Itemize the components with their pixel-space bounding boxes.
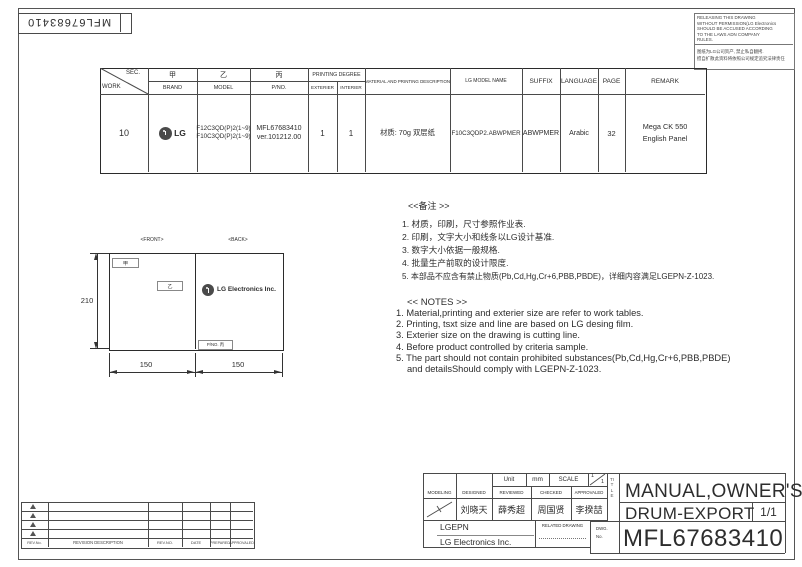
rev-no2-header: REV.NO.	[148, 538, 182, 547]
dim-ext-line	[90, 348, 109, 349]
revision-marker-icon	[30, 531, 36, 536]
cell-exterier: 1	[308, 94, 337, 172]
col-header-lg-model-name: LG MODEL NAME	[450, 68, 522, 94]
checked-name: 周国贤	[531, 498, 571, 520]
scale-label: SCALE	[549, 473, 588, 486]
approvaled-header-rev: APPROVALED	[230, 538, 253, 547]
jia-marker-box: 甲	[112, 258, 139, 268]
line	[694, 44, 793, 45]
note-en-item: 4. Before product controlled by criteria…	[396, 342, 730, 353]
panel-fold-line	[195, 253, 196, 349]
col-header-bing: 丙	[250, 68, 308, 81]
dim-line	[97, 253, 98, 349]
line	[437, 535, 534, 536]
note-cn-item: 2. 印刷，文字大小和线条以LG设计基准.	[402, 231, 714, 244]
notes-en-heading: << NOTES >>	[407, 297, 467, 308]
checked-header: CHECKED	[531, 486, 571, 498]
cell-pno: MFL67683410 ver.101212.00	[250, 94, 308, 172]
dim-height-value: 210	[78, 296, 96, 305]
col-header-exterier: EXTERIER	[308, 81, 337, 94]
notes-cn-heading: <<备注 >>	[408, 199, 450, 212]
cell-brand: LG	[148, 94, 197, 172]
scale-denominator: 1	[601, 479, 604, 485]
modeling-header: MODELING	[423, 486, 456, 498]
col-header-interier: INTERIER	[337, 81, 365, 94]
yi-marker-box: 乙	[157, 281, 183, 291]
line	[120, 13, 121, 32]
title-line-1: MANUAL,OWNER'S	[625, 481, 802, 503]
unit-label: Unit	[492, 473, 526, 486]
lg-logo-icon	[202, 284, 214, 296]
dwg-label: DWG.	[596, 526, 608, 531]
line	[590, 520, 591, 553]
drawing-number: MFL67683410	[623, 525, 783, 553]
col-header-language: LANGUAGE	[560, 68, 598, 94]
note-cn-item: 1. 材质，印刷，尺寸参照作业表.	[402, 218, 714, 231]
remark-line: Mega CK 550	[643, 121, 688, 133]
col-header-work: WORK	[102, 84, 121, 90]
prepared-header: PREPARED	[210, 538, 230, 547]
col-header-page: PAGE	[598, 68, 625, 94]
dim-line	[109, 372, 195, 373]
col-header-suffix: SUFFIX	[522, 68, 560, 94]
revision-description-header: REVISION DESCRIPTION	[48, 538, 148, 547]
note-en-item: 3. Exterier size on the drawing is cutti…	[396, 330, 730, 341]
line	[590, 553, 785, 554]
designed-header: DESIGNED	[456, 486, 492, 498]
col-header-remark: REMARK	[625, 68, 705, 94]
company-short: LGEPN	[440, 522, 469, 532]
designed-name: 刘晓天	[456, 498, 492, 520]
corner-part-number: MFL67683410	[18, 13, 120, 32]
line	[21, 511, 253, 512]
line	[21, 529, 253, 530]
col-header-sec: SEC.	[126, 70, 140, 76]
note-cn-item: 3. 数字大小依据一般规格.	[402, 244, 714, 257]
dim-ext-line	[90, 253, 109, 254]
title-vertical-label: TITLE	[610, 477, 614, 499]
cell-page: 32	[598, 94, 625, 172]
col-header-printing-degree: PRINTING DEGREE	[308, 68, 365, 81]
scale-numerator: 1	[591, 473, 594, 479]
col-header-pno: P/NO.	[250, 81, 308, 94]
note-en-item: 5. The part should not contain prohibite…	[396, 353, 730, 364]
drawing-sheet: MFL67683410 RELEASING THIS DRAWING WITHO…	[0, 0, 802, 567]
lg-logo-icon	[159, 127, 172, 140]
dim-ext-line	[282, 353, 283, 377]
line	[21, 520, 253, 521]
pno-marker-box: P/NO. 丙	[198, 340, 233, 350]
note-cn-item: 4. 批量生产前取的设计限度.	[402, 257, 714, 270]
rev-no-header: REV.No.	[21, 538, 48, 547]
notice-line: RULES.	[697, 37, 791, 43]
model-line: F10C3QD(P)2(1~9)	[196, 133, 250, 141]
cell-language: Arabic	[560, 94, 598, 172]
dim-right-value: 150	[228, 360, 248, 369]
notice-text-cn: 图纸为LG公司资产, 禁止私自翻拷. 擅自扩散此资料将依照公司规定追究法律责任	[697, 48, 791, 62]
arrow-left-icon	[196, 370, 203, 374]
line	[619, 473, 620, 553]
pno-line: ver.101212.00	[257, 133, 301, 142]
brand-text: LG	[174, 128, 186, 138]
notice-text-en: RELEASING THIS DRAWING WITHOUT PERMISSIO…	[697, 15, 791, 43]
cell-work: 10	[100, 94, 148, 172]
related-drawing-label: RELATED DRAWING	[535, 521, 590, 529]
cell-suffix: ABWPMER	[522, 94, 560, 172]
date-header: DATE	[182, 538, 210, 547]
related-drawing-dotted-line	[539, 538, 586, 539]
notes-cn-list: 1. 材质，印刷，尺寸参照作业表. 2. 印刷，文字大小和线条以LG设计基准. …	[402, 218, 714, 283]
company-full: LG Electronics Inc.	[440, 537, 511, 547]
notice-line: 擅自扩散此资料将依照公司规定追究法律责任	[697, 55, 791, 62]
cell-remark: Mega CK 550 English Panel	[625, 94, 705, 172]
cell-interier: 1	[337, 94, 365, 172]
sec-work-diagonal	[100, 68, 148, 94]
arrow-down-icon	[94, 342, 98, 349]
dwg-label-no: No.	[596, 534, 603, 539]
note-en-item: 1. Material,printing and exterier size a…	[396, 308, 730, 319]
model-line: F12C3QD(P)2(1~9)	[196, 125, 250, 133]
arrow-left-icon	[110, 370, 117, 374]
line	[423, 547, 590, 548]
arrow-up-icon	[94, 253, 98, 260]
col-header-brand: BRAND	[148, 81, 197, 94]
col-header-model: MODEL	[197, 81, 250, 94]
back-label: <BACK>	[206, 236, 270, 244]
col-header-yi: 乙	[197, 68, 250, 81]
pno-line: MFL67683410	[256, 124, 301, 133]
title-line-2: DRUM-EXPORT	[625, 504, 755, 524]
cell-model: F12C3QD(P)2(1~9) F10C3QD(P)2(1~9)	[197, 94, 250, 172]
reviewed-name: 薛秀超	[492, 498, 531, 520]
note-en-item: 2. Printing, tsxt size and line are base…	[396, 319, 730, 330]
cell-material: 材质: 70g 双层纸	[365, 94, 450, 172]
col-header-material: MATERIAL AND PRINTING DESCRIPTION	[365, 68, 450, 94]
unit-value: mm	[526, 473, 549, 486]
reviewed-header: REVIEWED	[492, 486, 531, 498]
modeling-signature-mark	[423, 498, 456, 520]
cell-lg-model-name: F10C3QDP2.ABWPMER	[450, 94, 522, 172]
front-label: <FRONT>	[120, 236, 184, 244]
arrow-right-icon	[274, 370, 281, 374]
approvaled-header: APPROVALED	[571, 486, 607, 498]
notice-line: 图纸为LG公司资产, 禁止私自翻拷.	[697, 48, 791, 55]
revision-marker-icon	[30, 513, 36, 518]
approvaled-name: 李揆喆	[571, 498, 607, 520]
back-brand-text: LG Electronics Inc.	[217, 286, 276, 293]
sheet-count: 1/1	[752, 502, 785, 521]
revision-marker-icon	[30, 504, 36, 509]
notes-en-list: 1. Material,printing and exterier size a…	[396, 308, 730, 375]
revision-marker-icon	[30, 522, 36, 527]
dim-line	[195, 372, 282, 373]
col-header-jia: 甲	[148, 68, 197, 81]
note-en-item-continuation: and detailsShould comply with LGEPN-Z-10…	[396, 364, 730, 375]
note-cn-item: 5. 本部品不应含有禁止物质(Pb,Cd,Hg,Cr+6,PBB,PBDE)，详…	[402, 270, 714, 283]
dim-left-value: 150	[136, 360, 156, 369]
line	[607, 473, 608, 521]
remark-line: English Panel	[643, 133, 688, 145]
arrow-right-icon	[187, 370, 194, 374]
